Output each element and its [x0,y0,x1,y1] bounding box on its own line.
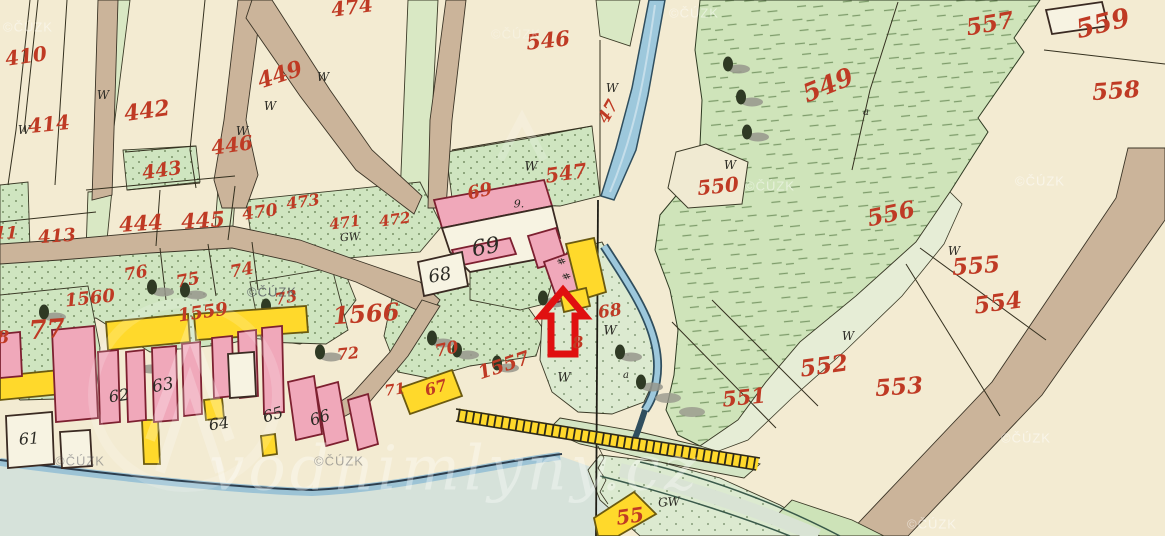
pink-building [0,332,22,378]
shadow-blob [655,393,681,403]
white-building [228,352,256,398]
white-building [6,412,54,468]
shadow-blob [679,407,705,417]
map-canvas[interactable]: 4104144424464434494744134114444454704734… [0,0,1165,536]
white-building [60,430,92,468]
pink-building [126,350,146,422]
map-svg [0,0,1165,536]
